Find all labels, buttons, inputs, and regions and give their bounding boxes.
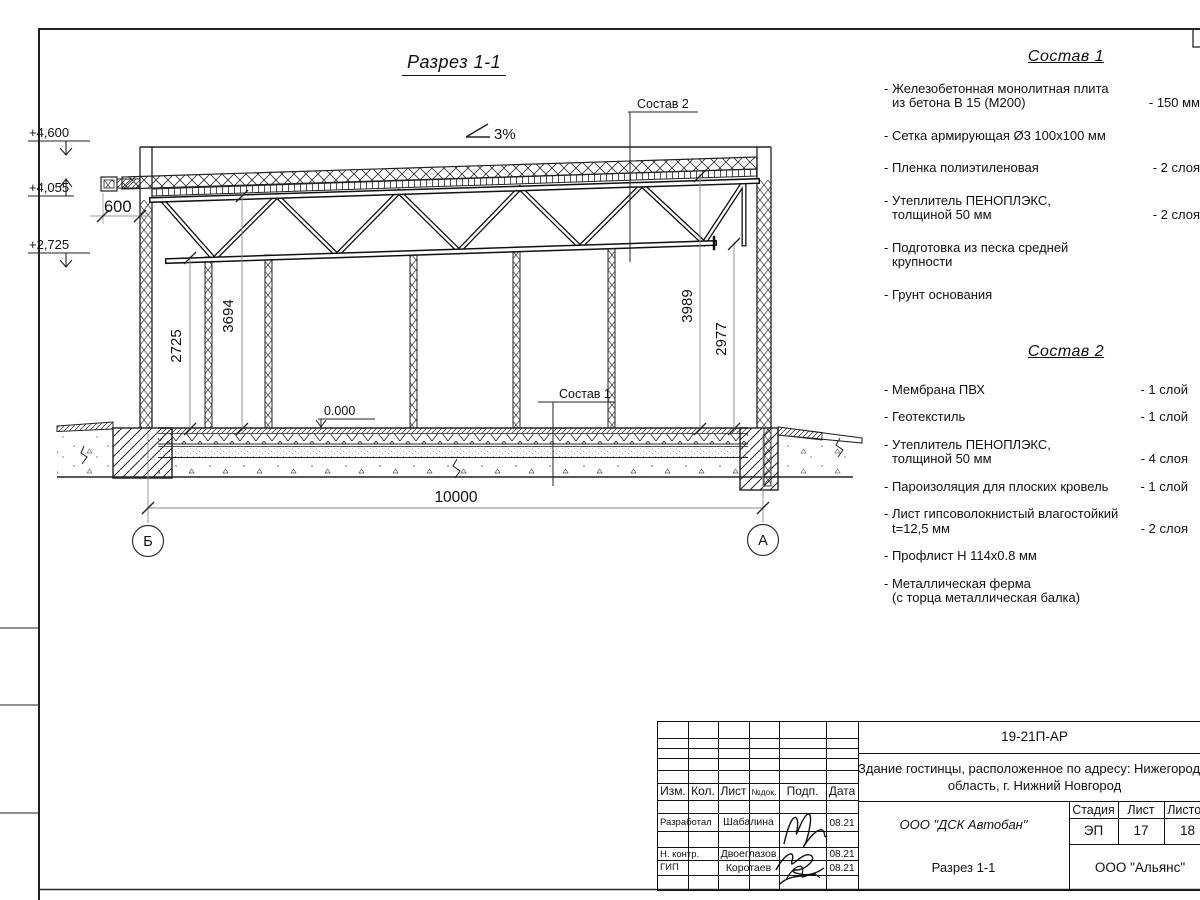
list-item: - Лист гипсоволокнистый влагостойкийt=12… [884,507,1188,536]
col-ndok: №док. [749,787,779,797]
slope-symbol: 3% [466,124,516,143]
signer-name: Коротаев [718,862,779,874]
composition-list-1: Состав 1 - Железобетонная монолитная пли… [884,50,1200,320]
list-item: - Мембрана ПВХ - 1 слой [884,383,1188,398]
list-item: - Подготовка из песка среднейкрупности [884,241,1200,270]
drawing-name: Разрез 1-1 [858,860,1069,875]
sheet-value: 17 [1118,823,1164,838]
list-item: - Пленка полиэтиленовая - 2 слоя [884,161,1200,176]
list-item: - Грунт основания [884,288,1200,303]
col-izm: Изм. [658,784,688,798]
stage-value: ЭП [1069,823,1118,838]
axis-bubbles: Б А [133,525,779,557]
vertical-dimensions: 2725 3694 3989 2977 [168,170,740,435]
project-object-line1: Здание гостинцы, расположенное по адресу… [858,761,1200,776]
sheets-header: Листов [1164,803,1200,817]
title-block: Изм. Кол. Лист №док. Подп. Дата Разработ… [657,721,1200,891]
col-podp: Подп. [779,784,826,798]
list-item: - Геотекстиль - 1 слой [884,410,1188,425]
composition-2-title: Состав 2 [884,345,1188,360]
col-data: Дата [826,784,858,798]
col-kol: Кол. [688,784,718,798]
project-object-line2: область, г. Нижний Новгород [858,778,1200,793]
level-low: +2,725 [29,237,69,252]
sheet-header: Лист [1118,803,1164,817]
signer-date: 08.21 [826,849,858,860]
svg-text:3%: 3% [494,126,516,143]
svg-text:3694: 3694 [220,299,237,332]
level-zero: 0.000 [316,404,375,427]
list-item: - Утеплитель ПЕНОПЛЭКС,толщиной 50 мм - … [884,438,1188,467]
signer-role: Разработал [660,817,718,828]
list-item: - Металлическая ферма(с торца металличес… [884,577,1188,606]
columns [205,245,615,428]
composition-list-2: Состав 2 - Мембрана ПВХ - 1 слой - Геоте… [884,345,1188,619]
col-list: Лист [718,784,749,798]
contractor: ООО "ДСК Автобан" [858,817,1069,832]
project-code: 19-21П-АР [858,729,1200,744]
signer-date: 08.21 [826,863,858,874]
level-mid: +4,055 [29,180,69,195]
svg-text:2725: 2725 [168,329,185,362]
signer-date: 08.21 [826,818,858,829]
svg-text:600: 600 [104,198,132,216]
svg-text:0.000: 0.000 [324,404,355,418]
list-item: - Пароизоляция для плоских кровель - 1 с… [884,480,1188,495]
signer-role: Н. контр. [660,849,718,860]
composition-1-title: Состав 1 [884,50,1200,65]
drawing-sheet: +4,600 +4,055 +2,725 600 3% Состав 2 Сос… [0,0,1200,900]
list-item: - Утеплитель ПЕНОПЛЭКС,толщиной 50 мм - … [884,194,1200,223]
signer-name: Шабалина [718,816,779,828]
list-item: - Железобетонная монолитная плитаиз бето… [884,82,1200,111]
axis-left-label: Б [143,534,153,550]
level-top: +4,600 [29,125,69,140]
section-title: Разрез 1-1 [402,52,506,76]
svg-text:Состав 2: Состав 2 [637,97,689,111]
signature-approver [772,840,828,888]
svg-text:3989: 3989 [679,289,696,322]
signer-name: Двоеглазов [718,848,779,860]
organization: ООО "Альянс" [1069,860,1200,875]
svg-text:2977: 2977 [713,322,730,355]
svg-text:Состав 1: Состав 1 [559,387,611,401]
sheets-value: 18 [1164,823,1200,838]
list-item: - Профлист Н 114х0.8 мм [884,549,1188,564]
axis-right-label: А [758,533,768,549]
floor-layers [57,428,853,478]
list-item: - Сетка армирующая Ø3 100х100 мм [884,129,1200,144]
svg-text:10000: 10000 [434,489,477,506]
stage-header: Стадия [1069,803,1118,817]
signer-role: ГИП [660,862,718,873]
